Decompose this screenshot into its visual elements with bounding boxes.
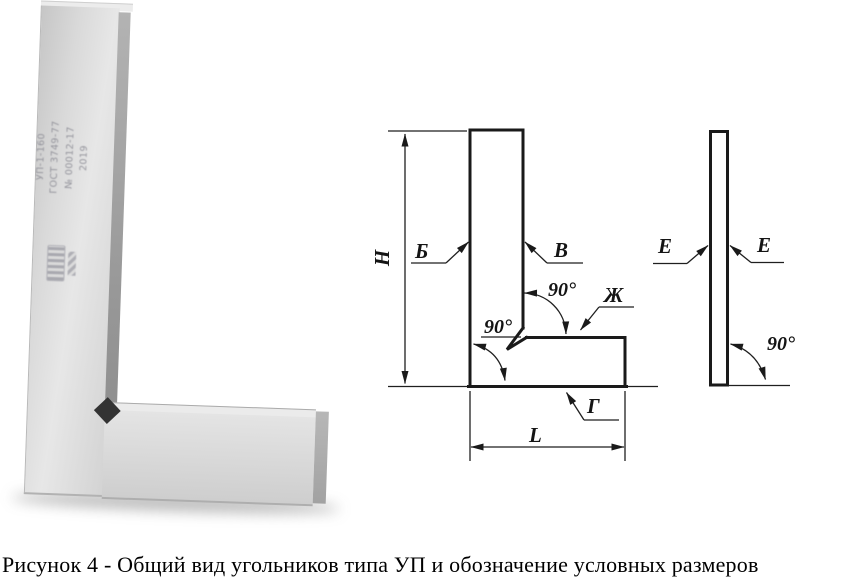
label-right-face-E: Е [756, 233, 771, 257]
label-E-right-leader [730, 246, 751, 263]
label-base-working-face-Zh: Ж [602, 283, 624, 307]
label-side-angle: 90° [767, 333, 795, 355]
label-G-leader [567, 393, 585, 421]
outer-angle-arc [474, 344, 506, 381]
side-angle-arc [731, 344, 766, 380]
label-B-leader [446, 242, 469, 263]
label-inner-face-V: В [553, 238, 568, 262]
label-left-face-E: Е [657, 234, 672, 258]
label-V-leader [525, 242, 547, 263]
figure-canvas: УП-1-160 ГОСТ 3749-77 № 00012-17 2019 [0, 0, 846, 587]
side-view-blade-outline [711, 132, 728, 386]
label-E-left-leader [687, 246, 708, 264]
label-inner-angle: 90° [548, 279, 576, 301]
label-outer-face-B: Б [414, 239, 428, 263]
label-height-H: Н [370, 249, 394, 267]
base-outline [527, 338, 626, 387]
figure-caption: Рисунок 4 - Общий вид угольников типа УП… [2, 552, 846, 578]
label-base-bottom-face-G: Г [586, 394, 600, 418]
blade-outline [470, 130, 523, 387]
dimension-drawings: Н Б В 90° Ж 90° Г [0, 0, 846, 587]
side-view: Е Е 90° [653, 132, 795, 386]
label-Zh-leader [581, 307, 600, 330]
front-view: Н Б В 90° Ж 90° Г [370, 130, 658, 461]
label-length-L: L [528, 423, 542, 447]
label-outer-angle: 90° [484, 316, 512, 338]
